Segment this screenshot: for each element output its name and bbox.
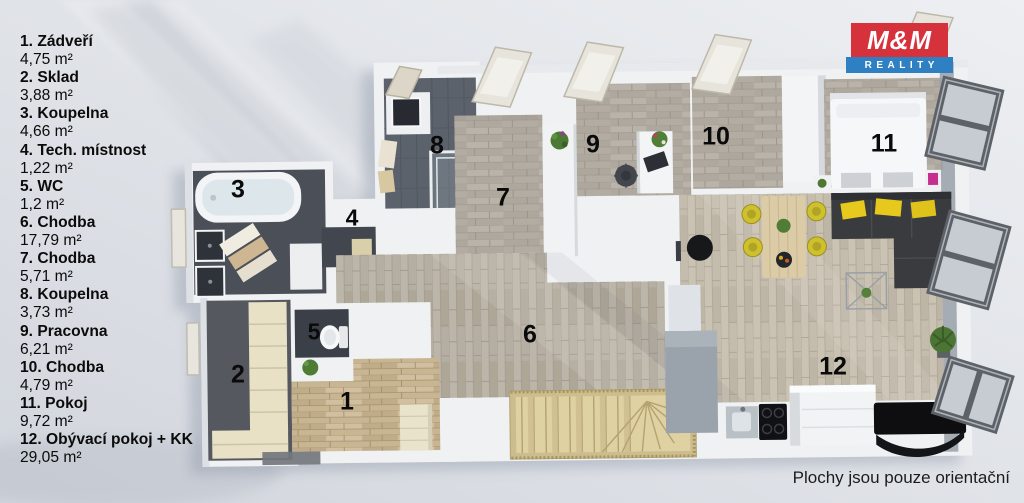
legend-room-name: 11. Pokoj bbox=[20, 395, 193, 413]
legend-room-name: 12. Obývací pokoj + KK bbox=[20, 431, 193, 449]
legend-room-area: 17,79 m² bbox=[20, 232, 193, 250]
logo-subtitle: REALITY bbox=[860, 60, 939, 71]
legend-room-name: 9. Pracovna bbox=[20, 323, 193, 341]
room-3-bathroom bbox=[193, 169, 327, 297]
logo-top-bar: M&M bbox=[851, 23, 948, 57]
legend-room-name: 7. Chodba bbox=[20, 250, 193, 268]
legend-room-area: 6,21 m² bbox=[20, 341, 193, 359]
bathtub bbox=[195, 172, 302, 223]
legend-room-name: 6. Chodba bbox=[20, 214, 193, 232]
legend-room-name: 5. WC bbox=[20, 178, 193, 196]
legend-room-area: 1,22 m² bbox=[20, 160, 193, 178]
floorplan-render: 1. Zádveří 4,75 m² 2. Sklad 3,88 m² 3. K… bbox=[0, 0, 1024, 503]
legend-room-name: 2. Sklad bbox=[20, 69, 193, 87]
shoe-cabinet bbox=[400, 404, 433, 450]
legend-room-area: 1,2 m² bbox=[20, 196, 193, 214]
room-label-12: 12 bbox=[819, 353, 847, 382]
legend-room-name: 10. Chodba bbox=[20, 359, 193, 377]
bathroom-cabinet bbox=[290, 243, 323, 289]
toilet bbox=[320, 325, 348, 349]
sofa-pillow bbox=[875, 198, 902, 216]
wall-tv bbox=[676, 241, 681, 261]
logo-title: M&M bbox=[867, 25, 932, 56]
hall-cabinet bbox=[542, 124, 578, 256]
pink-accessory bbox=[928, 173, 938, 185]
legend: 1. Zádveří 4,75 m² 2. Sklad 3,88 m² 3. K… bbox=[20, 33, 193, 467]
legend-room-area: 4,75 m² bbox=[20, 51, 193, 69]
legend-room-area: 29,05 m² bbox=[20, 449, 193, 467]
room-label-6: 6 bbox=[523, 321, 537, 350]
legend-room-name: 4. Tech. místnost bbox=[20, 142, 193, 160]
room-label-7: 7 bbox=[496, 184, 510, 213]
room-label-2: 2 bbox=[231, 361, 245, 390]
kitchen-island bbox=[790, 385, 877, 446]
room-5-wc bbox=[295, 309, 350, 358]
legend-room-area: 4,66 m² bbox=[20, 123, 193, 141]
room-label-1: 1 bbox=[340, 388, 354, 417]
legend-room-area: 4,79 m² bbox=[20, 377, 193, 395]
cooktop bbox=[759, 404, 787, 440]
room-label-3: 3 bbox=[231, 176, 245, 205]
room-label-11: 11 bbox=[871, 130, 897, 159]
room-label-8: 8 bbox=[430, 132, 444, 161]
legend-room-area: 3,73 m² bbox=[20, 304, 193, 322]
bedroom-wardrobe bbox=[782, 75, 827, 182]
legend-room-area: 9,72 m² bbox=[20, 413, 193, 431]
dining-table bbox=[761, 195, 806, 278]
legend-room-area: 5,71 m² bbox=[20, 268, 193, 286]
legend-room-area: 3,88 m² bbox=[20, 87, 193, 105]
kitchen-sink bbox=[726, 406, 758, 438]
doormat bbox=[262, 451, 320, 465]
room-label-4: 4 bbox=[346, 205, 359, 232]
towel bbox=[378, 170, 395, 194]
legend-room-name: 3. Koupelna bbox=[20, 105, 193, 123]
legend-room-name: 8. Koupelna bbox=[20, 286, 193, 304]
towel bbox=[378, 140, 397, 169]
disclaimer-text: Plochy jsou pouze orientační bbox=[793, 468, 1010, 488]
duct bbox=[668, 285, 701, 333]
mm-reality-logo: M&M REALITY bbox=[846, 23, 958, 73]
legend-room-name: 1. Zádveří bbox=[20, 33, 193, 51]
sofa-pillow bbox=[911, 200, 937, 219]
logo-bottom-bar: REALITY bbox=[846, 57, 953, 73]
room-label-5: 5 bbox=[308, 319, 321, 346]
desk bbox=[636, 131, 673, 193]
room-2-storage bbox=[206, 300, 292, 461]
room-label-10: 10 bbox=[702, 123, 730, 152]
room-label-9: 9 bbox=[586, 131, 600, 160]
